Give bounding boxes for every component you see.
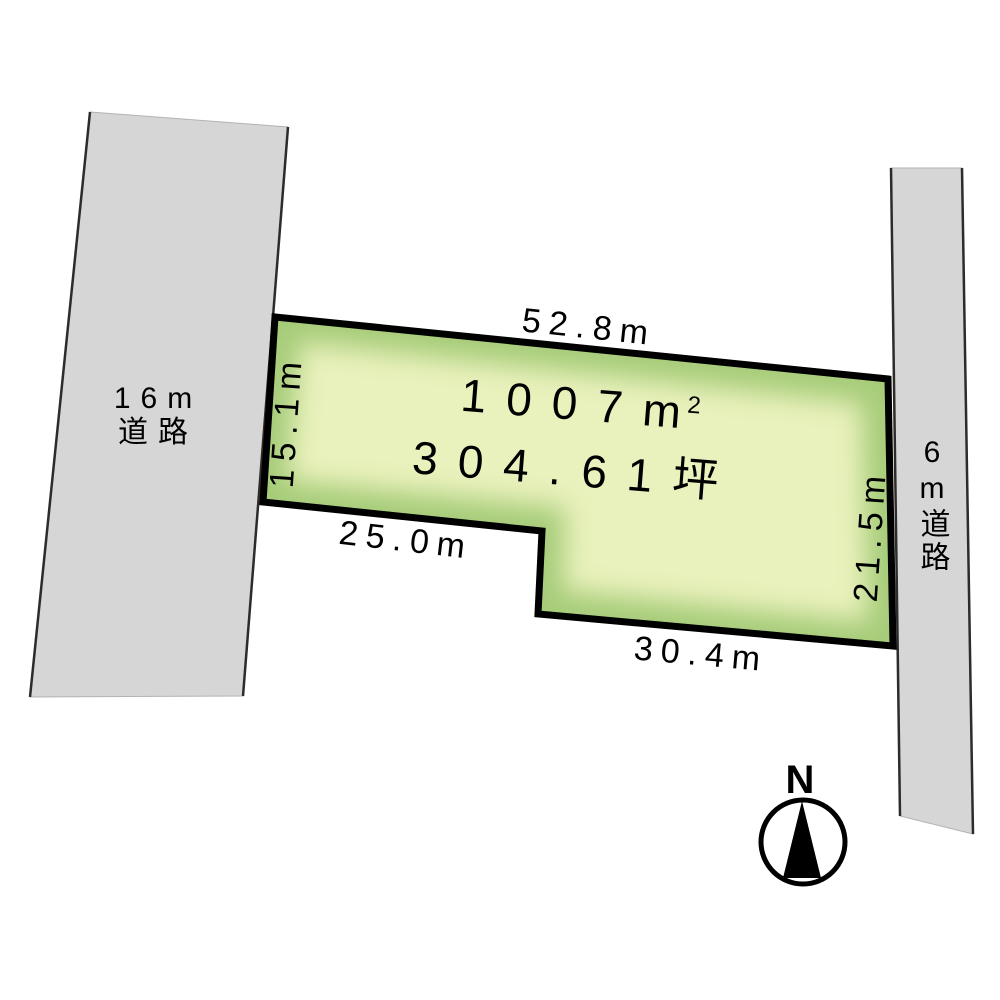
compass-north-label: N (786, 758, 815, 802)
compass (761, 800, 845, 884)
area-m2-value: 1007m (459, 369, 703, 440)
parcel-area-text: 1007m2 304.61坪 (410, 358, 746, 515)
area-m2-superscript: 2 (686, 391, 701, 419)
road-left-label-text: 道路 (114, 416, 202, 450)
road-left-label-width: 16m (114, 382, 202, 416)
land-plot-diagram: 52.8m 15.1m 21.5m 25.0m 30.4m 1007m2 304… (0, 0, 1000, 1000)
road-right-label: 6m道路 (916, 436, 949, 574)
diagram-shapes (0, 0, 1000, 1000)
road-left-label: 16m 道路 (114, 382, 202, 450)
